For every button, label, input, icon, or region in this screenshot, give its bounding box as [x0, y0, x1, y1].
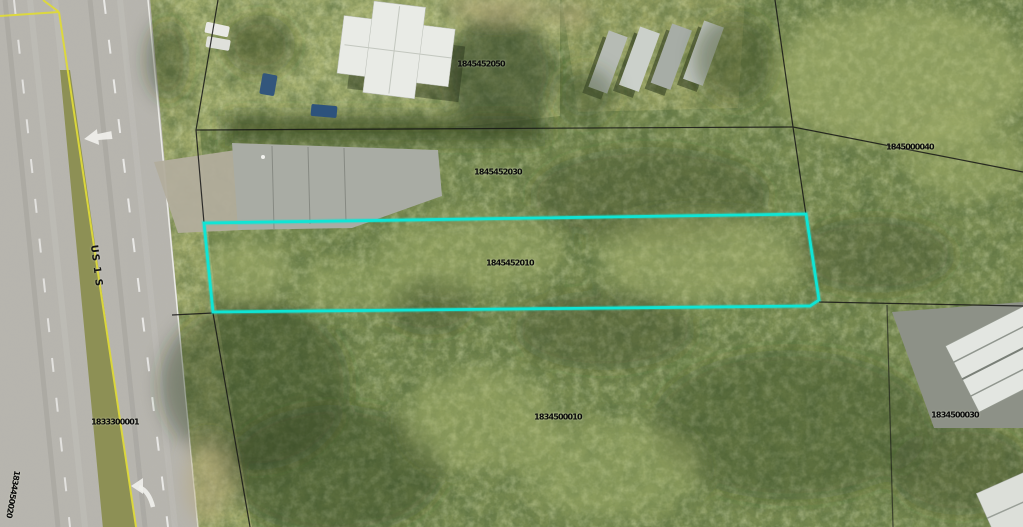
parcel-label-1834500010: 1834500010: [534, 413, 582, 422]
parcel-label-1845000040: 1845000040: [886, 143, 934, 152]
parcel-label-1845452050: 1845452050: [457, 60, 505, 69]
parcel-label-1834500030: 1834500030: [931, 411, 979, 420]
parcel-label-1845452010: 1845452010: [486, 259, 534, 268]
parcel-label-1845452030: 1845452030: [474, 168, 522, 177]
aerial-parcel-map[interactable]: 1845452050 1845452030 1845000040 1845452…: [0, 0, 1023, 527]
parcel-label-1833300001: 1833300001: [91, 418, 139, 427]
